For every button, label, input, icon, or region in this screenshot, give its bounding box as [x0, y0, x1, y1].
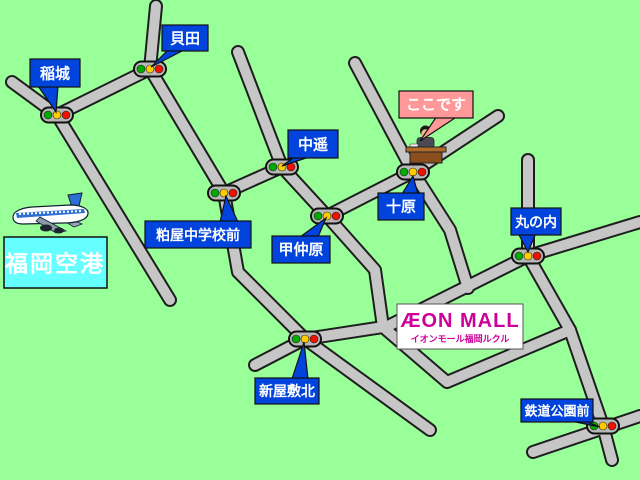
traffic-light-inagi	[41, 108, 73, 123]
intersection-name: 甲仲原	[278, 241, 323, 259]
traffic-light-shinyashiki-kita	[289, 332, 321, 347]
intersection-name: 中遥	[298, 136, 328, 154]
airport-label: 福岡空港	[4, 237, 107, 288]
intersection-name: 新屋敷北	[259, 383, 315, 399]
here-text: ここです	[406, 97, 466, 114]
aeon-mall-logo: ÆON MALL イオンモール福岡ルクル	[397, 304, 523, 349]
aeon-logo-text: ÆON MALL	[400, 310, 519, 332]
intersection-name: 貝田	[170, 31, 200, 48]
access-map: 稲城 貝田 中遥 粕屋中学校前 甲仲原 十原	[0, 0, 640, 480]
intersection-name: 粕屋中学校前	[156, 227, 240, 243]
aeon-subtitle-text: イオンモール福岡ルクル	[411, 333, 510, 344]
airport-text: 福岡空港	[4, 251, 105, 277]
traffic-light-kaida	[134, 62, 166, 77]
intersection-name: 鉄道公園前	[524, 404, 589, 419]
intersection-name: 十原	[386, 198, 416, 216]
intersection-name: 稲城	[40, 65, 70, 83]
traffic-light-konakabaru	[311, 209, 343, 224]
intersection-name: 丸の内	[514, 214, 557, 230]
traffic-light-kasuya-jhs-mae	[208, 186, 240, 201]
